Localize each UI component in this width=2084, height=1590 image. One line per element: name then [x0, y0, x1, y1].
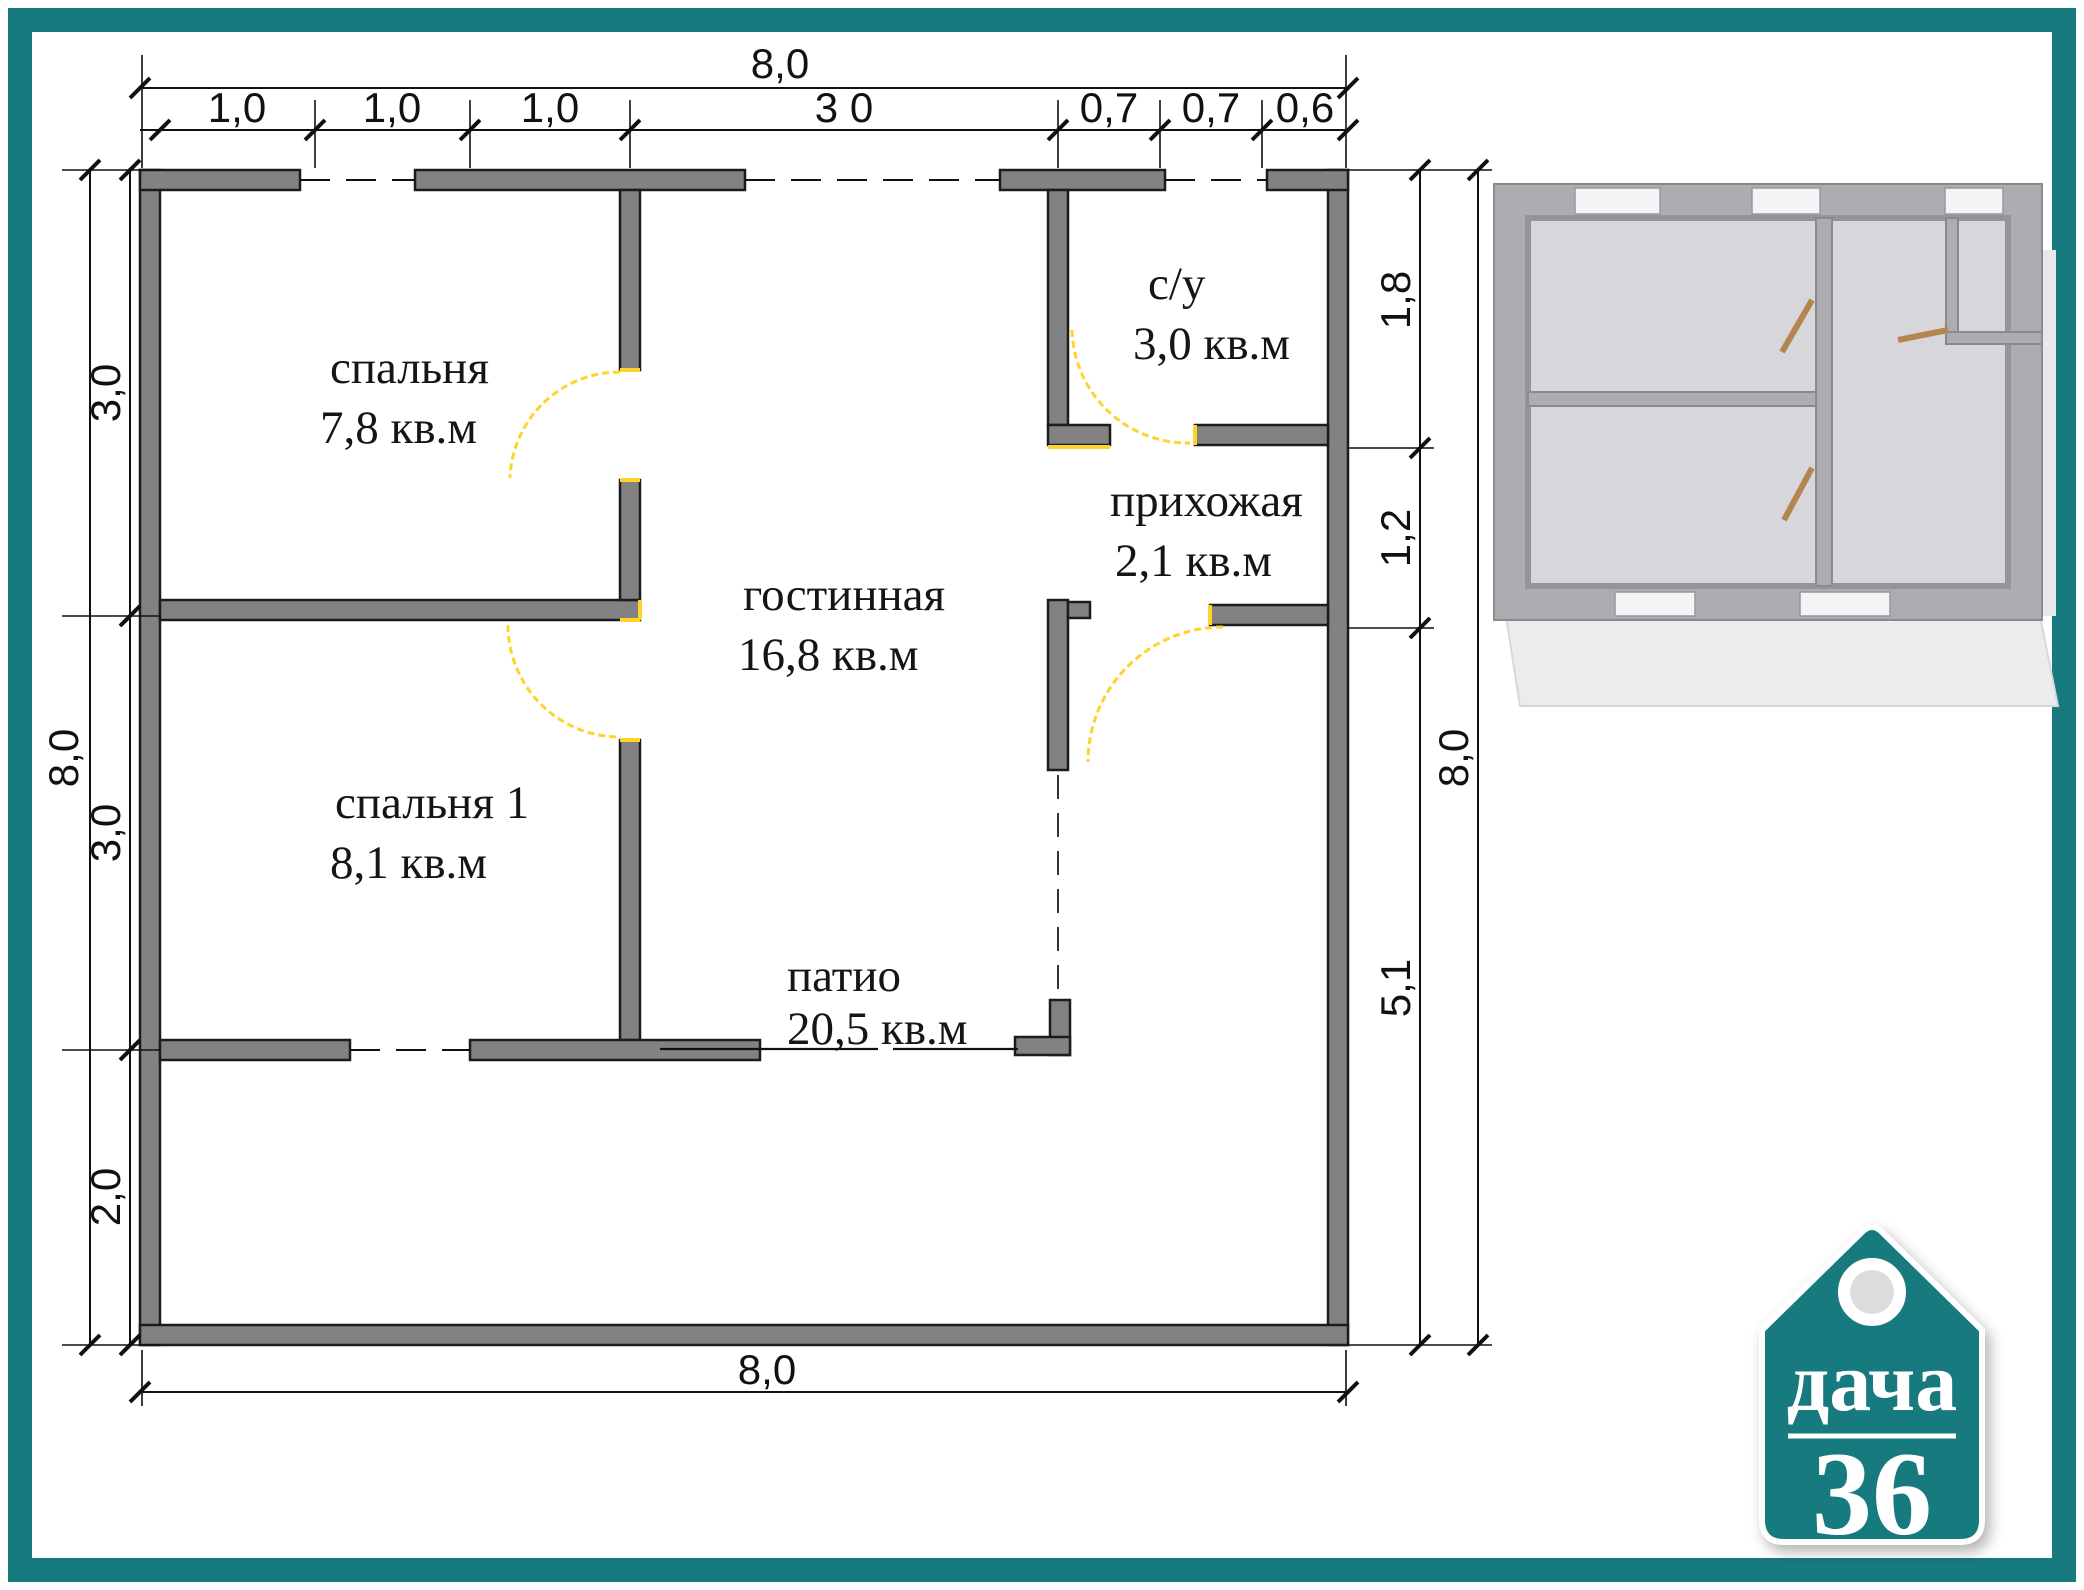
render-divider-wall — [1816, 218, 1832, 586]
dim-left-2: 3,0 — [82, 804, 129, 862]
room-hall-area: 2,1 кв.м — [1115, 535, 1272, 587]
page-canvas: спальня 7,8 кв.м с/у 3,0 кв.м прихожая 2… — [0, 0, 2084, 1590]
room-bedroom1-area: 8,1 кв.м — [330, 837, 487, 889]
room-living-area: 16,8 кв.м — [738, 629, 919, 681]
render-bath-wall-v — [1946, 218, 1958, 338]
dim-top-3: 1,0 — [521, 84, 579, 131]
wall-bath-left-foot — [1048, 425, 1110, 445]
door-arc-entry — [1088, 627, 1223, 762]
wall-outer-right — [1328, 170, 1348, 1345]
house-3d-render — [1494, 184, 2058, 706]
render-window — [1752, 188, 1820, 214]
dim-top-4: 3 0 — [815, 84, 873, 131]
render-bath-wall-h — [1946, 332, 2042, 344]
logo-word: дача — [1787, 1336, 1958, 1429]
render-window — [1615, 592, 1695, 616]
wall-patio-stub-h — [1015, 1037, 1070, 1055]
wall-hall-left-stub — [1048, 600, 1068, 770]
dim-bottom-total: 8,0 — [738, 1346, 796, 1393]
dim-right-3: 5,1 — [1372, 959, 1419, 1017]
dim-right-2: 1,2 — [1372, 509, 1419, 567]
dim-right-1: 1,8 — [1372, 271, 1419, 329]
render-window — [1800, 592, 1890, 616]
dim-top-2: 1,0 — [363, 84, 421, 131]
wall-hall-stub-tick — [1068, 602, 1090, 618]
room-bedroom-area: 7,8 кв.м — [320, 402, 477, 454]
room-patio-area: 20,5 кв.м — [787, 1003, 968, 1055]
room-patio-name: патио — [787, 950, 901, 1002]
wall-bath-left — [1048, 190, 1068, 425]
door-arc-bedroom1 — [508, 625, 620, 737]
floorplan-drawing: спальня 7,8 кв.м с/у 3,0 кв.м прихожая 2… — [0, 0, 2084, 1590]
wall-top-seg4 — [1267, 170, 1348, 190]
dim-top-1: 1,0 — [208, 84, 266, 131]
dim-top-7: 0,6 — [1276, 84, 1334, 131]
wall-top-seg3 — [1000, 170, 1165, 190]
wall-bedroom-divider — [160, 600, 640, 620]
wall-bedroom1-right — [620, 740, 640, 1040]
dimensions-bottom: 8,0 — [130, 1346, 1358, 1406]
room-hall-name: прихожая — [1110, 475, 1303, 527]
wall-top-seg1 — [140, 170, 300, 190]
dimensions-top: 8,0 1,0 1,0 1,0 3 0 0,7 0,7 0,6 — [130, 40, 1358, 168]
dim-left-3: 2,0 — [82, 1168, 129, 1226]
dim-right-total: 8,0 — [1430, 729, 1477, 787]
room-labels: спальня 7,8 кв.м с/у 3,0 кв.м прихожая 2… — [320, 258, 1303, 1055]
dim-top-6: 0,7 — [1182, 84, 1240, 131]
wall-bath-bottom — [1195, 425, 1328, 445]
wall-outer-left — [140, 170, 160, 1345]
door-arc-bedroom — [510, 372, 620, 478]
room-living-name: гостинная — [743, 569, 945, 621]
dim-top-total: 8,0 — [751, 40, 809, 87]
tag-hole — [1844, 1264, 1900, 1320]
room-bedroom1-name: спальня 1 — [335, 777, 529, 829]
dim-left-1: 3,0 — [82, 364, 129, 422]
wall-bedroom1-bottom-1 — [160, 1040, 350, 1060]
dim-left-total: 8,0 — [40, 729, 87, 787]
dacha-tag-logo: дача 36 — [1762, 1227, 1982, 1560]
wall-top-seg2 — [415, 170, 745, 190]
wall-bedroom-right-bottom — [620, 480, 640, 600]
room-bath-area: 3,0 кв.м — [1133, 318, 1290, 370]
wall-hall-bottom — [1210, 605, 1328, 625]
render-window — [1945, 188, 2003, 214]
room-bedroom-name: спальня — [330, 342, 489, 394]
render-window — [1575, 188, 1660, 214]
room-bath-name: с/у — [1148, 258, 1206, 310]
logo-number: 36 — [1812, 1427, 1932, 1560]
wall-bedroom-right-top — [620, 190, 640, 370]
render-bedroom-wall — [1528, 392, 1816, 406]
wall-outer-bottom — [140, 1325, 1348, 1345]
dim-top-5: 0,7 — [1080, 84, 1138, 131]
dimensions-right: 1,8 1,2 5,1 8,0 — [1348, 160, 1492, 1355]
